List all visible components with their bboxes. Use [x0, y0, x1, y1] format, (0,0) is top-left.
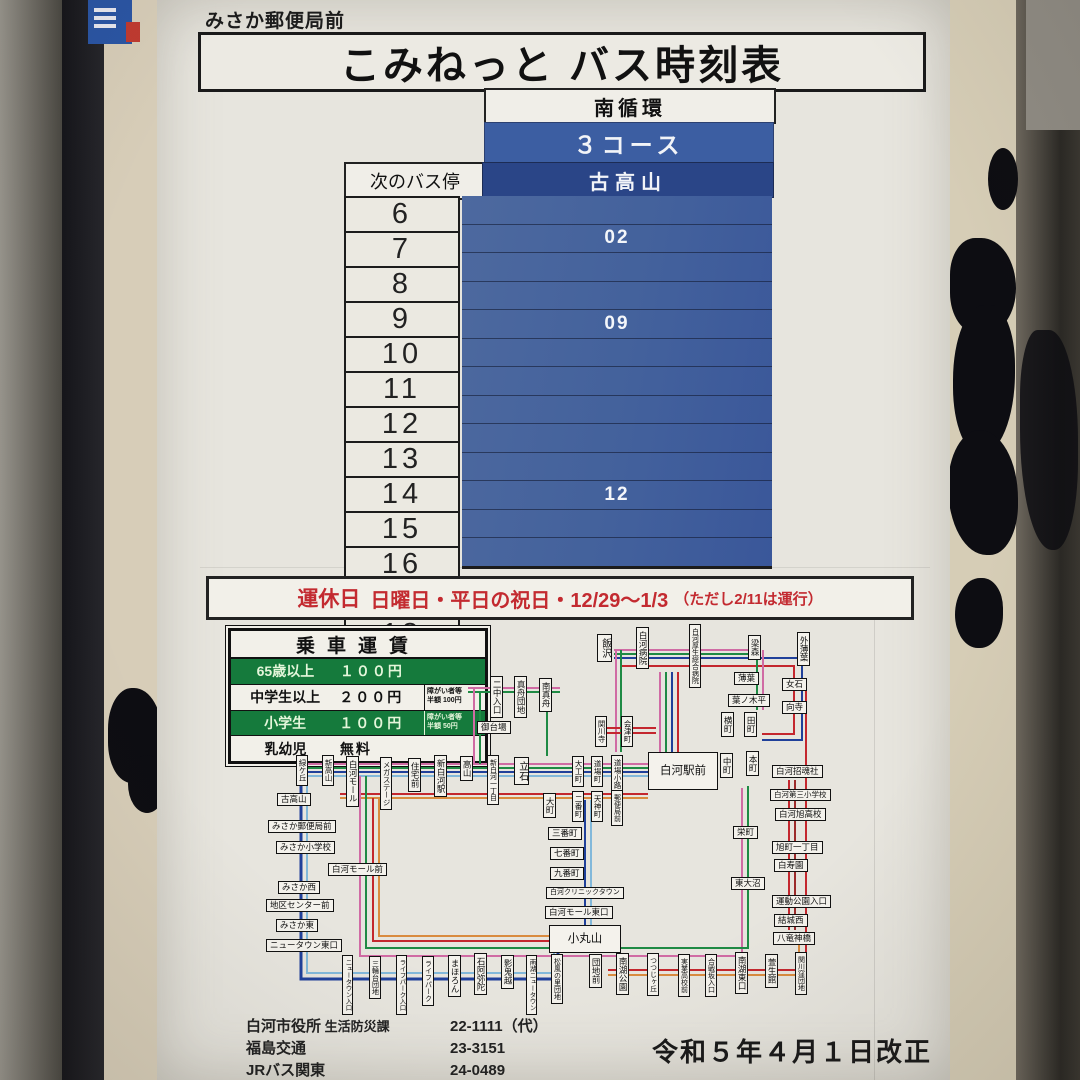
map-stop: 南真舟 [539, 678, 552, 712]
fare-price: １００円 [339, 711, 424, 736]
suspension-notice-paren: （ただし2/11は運行） [674, 588, 822, 609]
map-stop: みさか郵便局前 [268, 820, 336, 833]
map-stop: 本町 [746, 751, 759, 776]
timetable-minutes [462, 339, 772, 368]
map-stop: 七番町 [550, 847, 584, 860]
map-stop: 南湖東口 [735, 952, 748, 994]
map-stop: 新高山 [322, 755, 334, 786]
map-stop: ニュータウン入口 [342, 955, 353, 1015]
map-stop: 女石 [782, 678, 807, 691]
contact-name: JRバス関東 [246, 1060, 446, 1080]
bus-stop-name: みさか郵便局前 [205, 6, 345, 33]
map-stop: 団地前 [589, 954, 602, 988]
map-stop: 萱生館 [765, 954, 778, 988]
map-stop: 白河モール前 [328, 863, 387, 876]
map-stop: 御台場 [477, 721, 511, 734]
map-stop: 大町 [543, 793, 556, 818]
timetable-minutes [462, 367, 772, 396]
timetable-minutes: 09 [462, 310, 772, 339]
contact-row: 福島交通23-3151 [246, 1038, 548, 1060]
fare-price: ２００円 [339, 685, 424, 710]
map-stop: 住宅前 [408, 758, 421, 792]
map-stop: 白河クリニックタウン [546, 887, 624, 899]
timetable-hour: 13 [344, 441, 460, 478]
map-stop: 地区センター前 [266, 899, 334, 912]
timetable-minutes [462, 282, 772, 311]
timetable-minutes [462, 510, 772, 539]
map-stop: 横町 [721, 712, 734, 737]
timetable-minutes [462, 424, 772, 453]
map-stop: 薄葉 [734, 672, 759, 685]
background-left-dark [62, 0, 104, 1080]
map-stop: 白寿園 [774, 859, 808, 872]
map-stop: 白河駅前 [648, 752, 718, 790]
timetable-hour: 11 [344, 371, 460, 408]
timetable-minutes [462, 396, 772, 425]
fare-discount-note: 障がい者等 半額 100円 [424, 685, 485, 710]
map-stop: 真舟団地 [514, 676, 527, 718]
timetable-hour: 12 [344, 406, 460, 443]
fare-table-title: 乗車運賃 [231, 631, 485, 659]
map-stop: 白河モール [346, 756, 359, 807]
background-left-cream [104, 0, 158, 1080]
map-stop: 九番町 [550, 867, 584, 880]
paper-crease [874, 600, 875, 1080]
map-stop: 白河第三小学校 [770, 789, 831, 801]
map-stop: 道場町 [591, 756, 603, 787]
map-stop: 南湖公園 [616, 953, 629, 995]
map-stop: 松風の里団地 [551, 954, 563, 1004]
map-stop: 飯沢 [597, 634, 612, 662]
map-stop: 東大沼 [731, 877, 765, 890]
red-sign-fragment [126, 22, 140, 42]
fare-category: 65歳以上 [231, 659, 340, 684]
background-left-pole [0, 0, 62, 1080]
paint-blotch [955, 578, 1003, 648]
contact-phone: 24-0489 [450, 1060, 505, 1080]
map-stop: 梁森 [748, 635, 761, 660]
map-stop: 栄町 [733, 826, 758, 839]
map-stop: 大工町 [572, 756, 584, 787]
bus-stop-photo: みさか郵便局前 こみねっと バス時刻表 南循環 ３コース 次のバス停 古高山 6… [0, 0, 1080, 1080]
poster-title: こみねっと バス時刻表 [340, 33, 784, 91]
poster-title-box: こみねっと バス時刻表 [198, 32, 926, 92]
map-stop: 道場小路 [611, 755, 623, 793]
fare-row: 小学生１００円障がい者等 半額 50円 [231, 711, 485, 737]
fare-table: 乗車運賃 65歳以上１００円中学生以上２００円障がい者等 半額 100円小学生１… [228, 628, 488, 764]
fare-discount-note [425, 659, 485, 684]
timetable-minutes [462, 196, 772, 225]
map-stop: 白河旭高校 [775, 808, 826, 821]
map-stop: 三輪台団地 [369, 956, 381, 999]
map-stop: 影鬼越 [501, 955, 514, 989]
timetable-hour: 6 [344, 196, 460, 233]
fare-row: 65歳以上１００円 [231, 659, 485, 685]
map-stop: 新白河駅 [434, 755, 447, 797]
map-stop: ライフパーク入口 [396, 955, 407, 1015]
suspension-notice-text: 日曜日・平日の祝日・12/29～1/3 [370, 584, 668, 613]
map-stop: 実業高校前 [678, 954, 690, 997]
contact-phone: 22-1111（代） [450, 1016, 548, 1038]
map-stop: 白河病院 [636, 627, 649, 669]
map-stop: みさか西 [278, 881, 320, 894]
map-stop: 南湖ニュータウン [526, 955, 537, 1015]
contact-name: 福島交通 [246, 1038, 446, 1060]
map-stop: みさか東 [276, 919, 318, 932]
map-stop: つつじヶ丘 [647, 953, 659, 996]
map-stop: 合戦坂入口 [705, 954, 717, 997]
timetable-hour: 10 [344, 336, 460, 373]
timetable-minutes [462, 538, 772, 566]
map-stop: 白河厚生総合病院 [689, 624, 701, 688]
paint-blotch [988, 148, 1018, 210]
map-stop: ライフパーク [422, 956, 434, 1006]
contact-row: JRバス関東24-0489 [246, 1060, 548, 1080]
map-stop: 郵便局前 [611, 790, 623, 826]
timetable-hour: 7 [344, 231, 460, 268]
course-header: ３コース [484, 122, 774, 164]
map-stop: 関川窪団地 [795, 952, 807, 995]
timetable-minutes: 02 [462, 225, 772, 254]
map-stop: 八竜神橋 [773, 932, 815, 945]
contact-row: 白河市役所 生活防災課22-1111（代） [246, 1016, 548, 1038]
map-stop: 天神町 [591, 791, 603, 822]
fare-category: 中学生以上 [231, 685, 339, 710]
contact-phone: 23-3151 [450, 1038, 505, 1060]
map-stop: 新白河一丁目 [487, 755, 499, 805]
map-stop: 葉ノ木平 [728, 694, 770, 707]
map-stop: 二中入口 [490, 676, 503, 718]
timetable-minutes-column: 020912 [462, 196, 772, 569]
revision-date: 令和５年４月１日改正 [652, 1032, 932, 1069]
map-stop: 高山 [460, 756, 473, 781]
map-stop: 結城西 [774, 914, 808, 927]
timetable-hour: 14 [344, 476, 460, 513]
map-stop: 二番町 [572, 791, 584, 822]
map-stop: 三番町 [548, 827, 582, 840]
map-stop: 立石 [514, 757, 529, 785]
map-stop: 会津町 [621, 716, 633, 747]
fare-row: 中学生以上２００円障がい者等 半額 100円 [231, 685, 485, 711]
map-stop: 緑ケ丘 [296, 755, 308, 786]
next-stop-label: 次のバス停 [344, 162, 486, 200]
destination-header: 古高山 [482, 162, 774, 198]
map-stop: 白河招魂社 [772, 765, 823, 778]
map-stop: 向寺 [782, 701, 807, 714]
map-stop: 石阿弥陀 [474, 953, 487, 995]
timetable-minutes [462, 253, 772, 282]
map-stop: 運動公園入口 [772, 895, 831, 908]
map-stop: みさか小学校 [276, 841, 335, 854]
timetable-hour-column: 6789101112131415161718 [344, 196, 460, 566]
fare-discount-note: 障がい者等 半額 50円 [424, 711, 485, 736]
timetable-hour: 8 [344, 266, 460, 303]
map-stop: 白河モール東口 [545, 906, 613, 919]
contact-list: 白河市役所 生活防災課22-1111（代）福島交通23-3151JRバス関東24… [246, 1016, 548, 1080]
timetable-hour: 9 [344, 301, 460, 338]
map-stop: 小丸山 [549, 925, 621, 953]
background-right-top [1026, 0, 1080, 130]
map-stop: メガステージ [380, 757, 392, 810]
fare-price: １００円 [340, 659, 425, 684]
route-group-header: 南循環 [484, 88, 776, 124]
map-stop: 外薄葉 [797, 632, 810, 666]
fare-category: 小学生 [231, 711, 339, 736]
timetable-minutes [462, 453, 772, 482]
map-stop: 古高山 [277, 793, 311, 806]
suspension-notice-label: 運休日 [297, 583, 360, 613]
map-stop: 旭町一丁目 [772, 841, 823, 854]
map-stop: 関川寺 [595, 716, 607, 747]
contact-dept: 生活防災課 [321, 1019, 390, 1034]
suspension-notice: 運休日 日曜日・平日の祝日・12/29～1/3 （ただし2/11は運行） [206, 576, 914, 620]
map-stop: まほろん [448, 955, 461, 997]
map-stop: 中町 [720, 753, 733, 778]
timetable-hour: 15 [344, 511, 460, 548]
map-stop: ニュータウン東口 [266, 939, 342, 952]
contact-name: 白河市役所 生活防災課 [246, 1016, 446, 1038]
timetable-minutes: 12 [462, 481, 772, 510]
map-stop: 田町 [744, 712, 757, 737]
